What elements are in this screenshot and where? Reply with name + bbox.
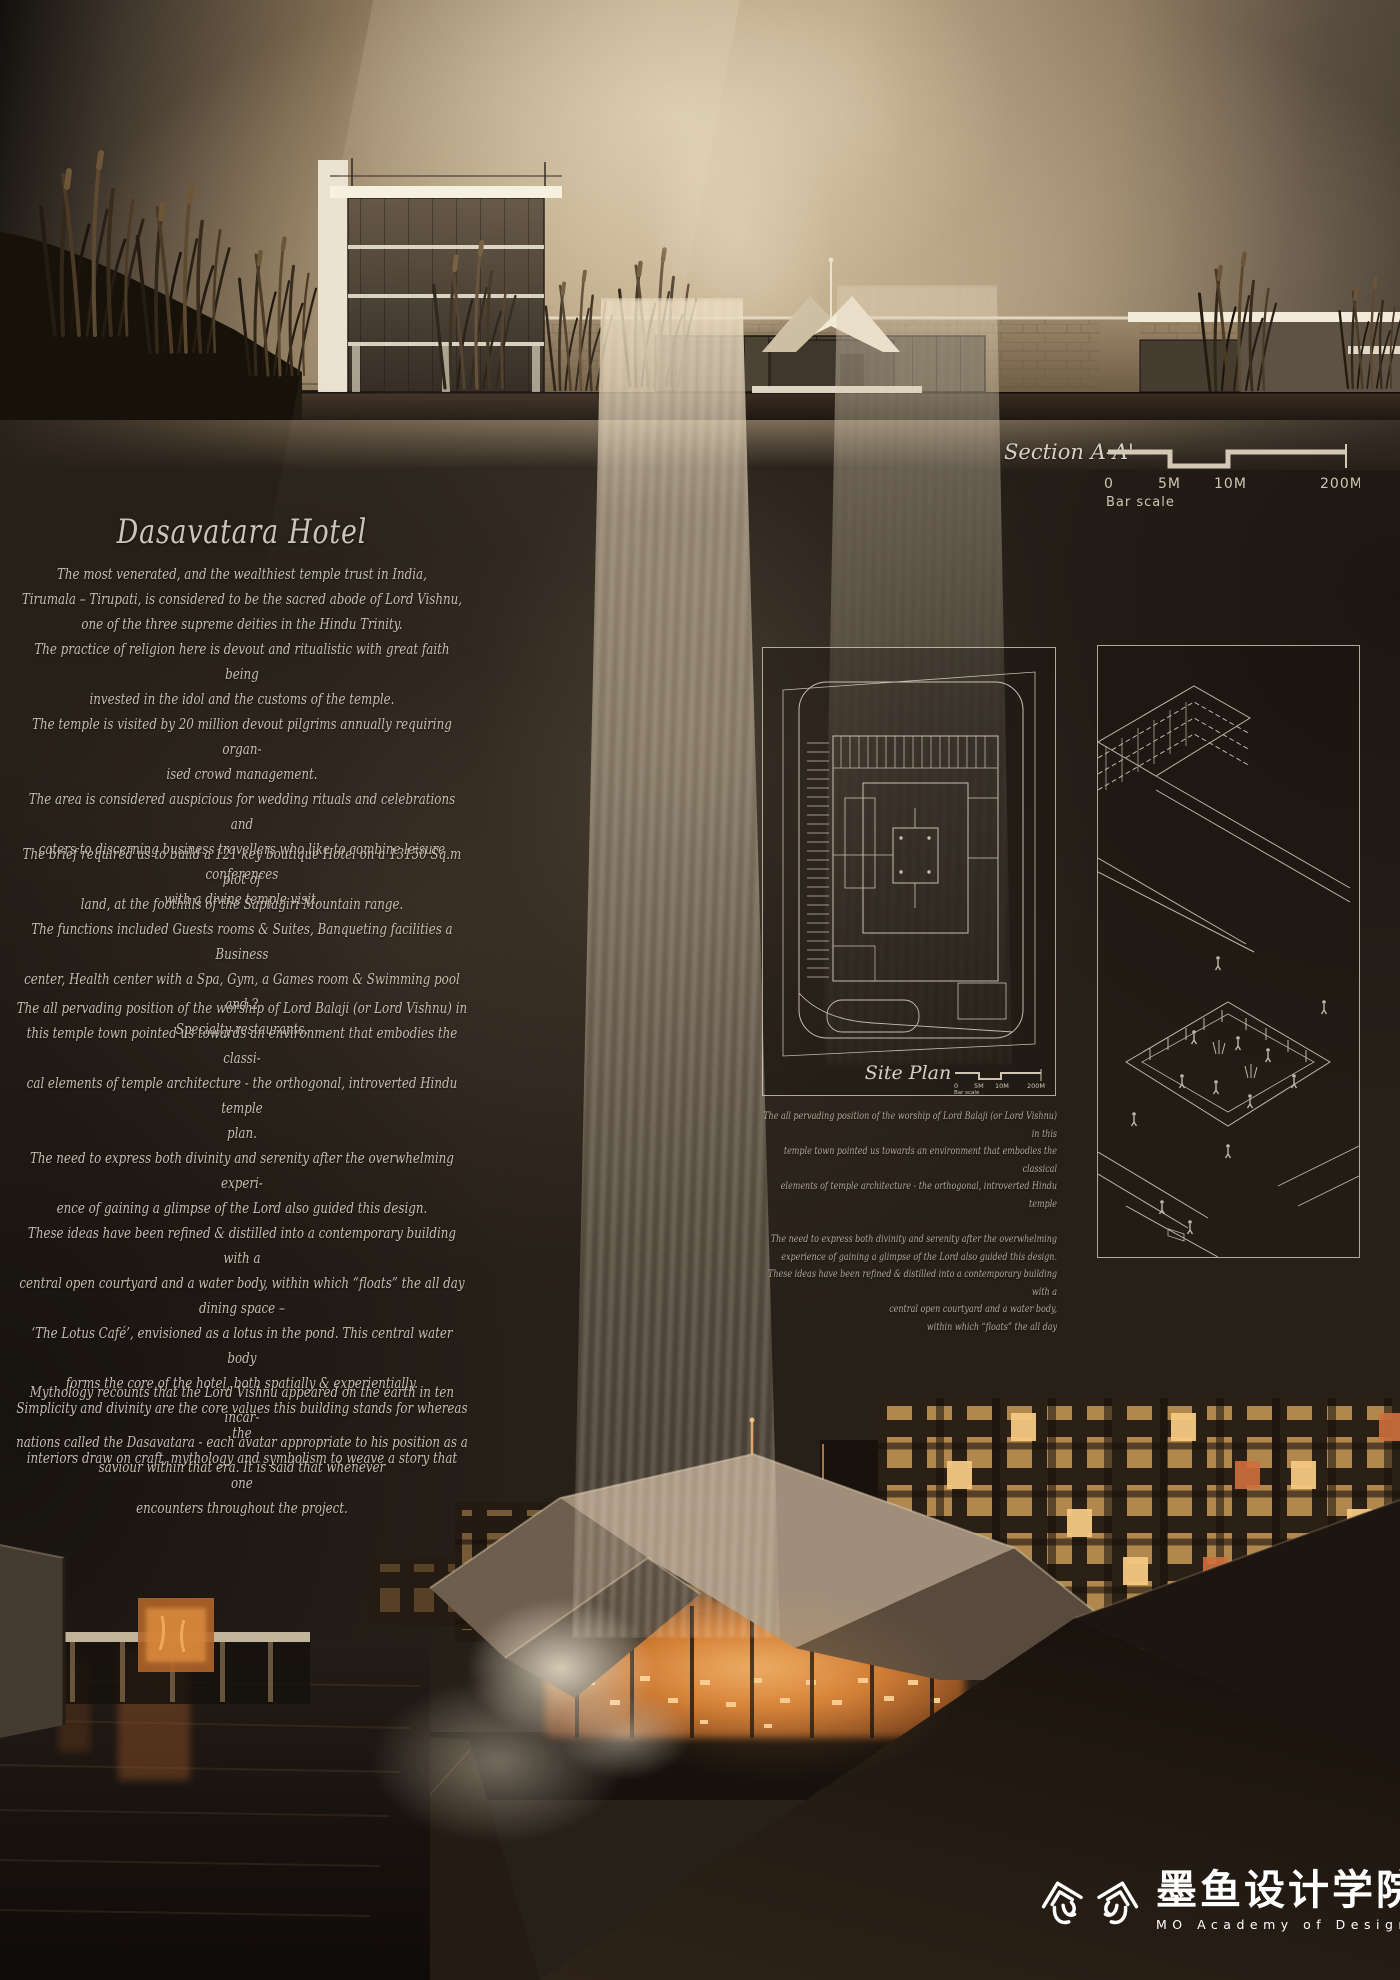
logo: 墨鱼设计学院 MO Academy of Design <box>1038 1852 1400 1948</box>
axonometric-panel <box>1097 645 1360 1258</box>
site-plan-caption: The all pervading position of the worshi… <box>757 1108 1057 1354</box>
logo-english-name: MO Academy of Design <box>1156 1917 1400 1932</box>
waterfall-mist-top <box>520 0 980 330</box>
site-plan-panel: Site Plan 0 5M 10M 200M Bar scale <box>762 647 1056 1096</box>
svg-text:5M: 5M <box>1158 476 1181 492</box>
intro-paragraph-4: Mythology recounts that the Lord Vishnu … <box>16 1380 468 1480</box>
site-plan-drawing <box>763 648 1055 1095</box>
squid-logo-icon <box>1038 1852 1142 1948</box>
svg-text:200M: 200M <box>1320 476 1360 492</box>
axonometric-drawing <box>1098 646 1359 1257</box>
svg-text:10M: 10M <box>995 1082 1009 1090</box>
logo-chinese-name: 墨鱼设计学院 <box>1156 1868 1400 1913</box>
svg-text:0: 0 <box>954 1082 958 1090</box>
svg-text:5M: 5M <box>974 1082 984 1090</box>
caption-paragraph-1: The all pervading position of the worshi… <box>757 1108 1057 1213</box>
svg-text:10M: 10M <box>1214 476 1247 492</box>
svg-text:0: 0 <box>1104 476 1114 492</box>
svg-text:200M: 200M <box>1027 1082 1045 1090</box>
poster-board: Dasavatara Hotel The most venerated, and… <box>0 0 1400 1980</box>
svg-text:Bar scale: Bar scale <box>954 1090 980 1094</box>
svg-text:Bar scale: Bar scale <box>1106 495 1175 510</box>
bar-scale: 0 5M 10M 200M Bar scale <box>1098 436 1360 514</box>
site-plan-bar-scale: 0 5M 10M 200M Bar scale <box>953 1066 1049 1094</box>
poster-title: Dasavatara Hotel <box>16 512 468 552</box>
logo-text: 墨鱼设计学院 MO Academy of Design <box>1156 1868 1400 1931</box>
caption-paragraph-2: The need to express both divinity and se… <box>757 1231 1057 1336</box>
